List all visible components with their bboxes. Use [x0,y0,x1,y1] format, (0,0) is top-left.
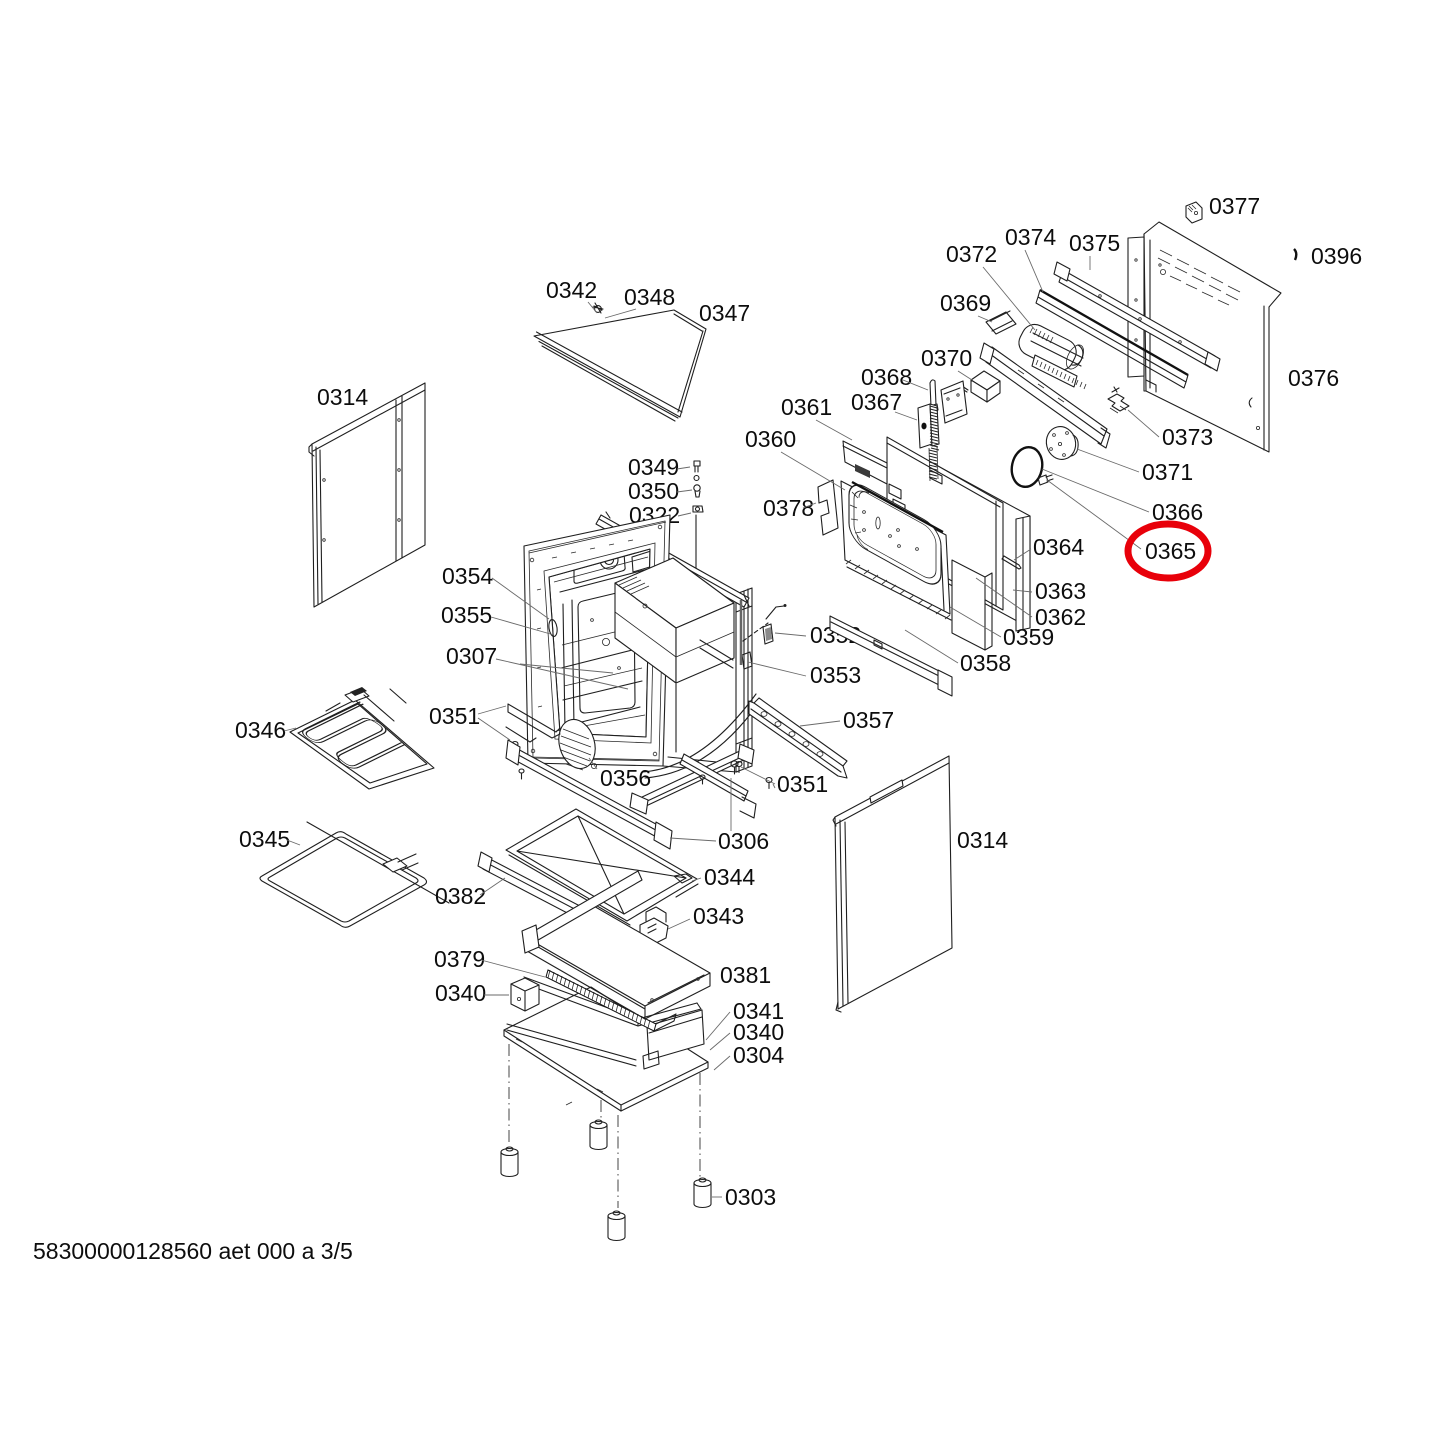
svg-text:0374: 0374 [1005,224,1056,250]
svg-text:0376: 0376 [1288,365,1339,391]
svg-text:0356: 0356 [600,765,651,791]
svg-text:0340: 0340 [435,980,486,1006]
svg-text:0304: 0304 [733,1042,784,1068]
svg-text:0348: 0348 [624,284,675,310]
svg-text:0349: 0349 [628,454,679,480]
svg-text:0351: 0351 [777,771,828,797]
svg-text:0382: 0382 [435,883,486,909]
svg-text:0314: 0314 [317,384,368,410]
svg-text:0362: 0362 [1035,604,1086,630]
svg-text:0314: 0314 [957,827,1008,853]
svg-text:0363: 0363 [1035,578,1086,604]
svg-text:0344: 0344 [704,864,755,890]
svg-text:0355: 0355 [441,602,492,628]
svg-text:58300000128560 aet 000 a 3/5: 58300000128560 aet 000 a 3/5 [33,1238,353,1264]
svg-text:0303: 0303 [725,1184,776,1210]
svg-text:0347: 0347 [699,300,750,326]
svg-text:0381: 0381 [720,962,771,988]
svg-text:0364: 0364 [1033,534,1084,560]
svg-text:0358: 0358 [960,650,1011,676]
svg-text:0396: 0396 [1311,243,1362,269]
svg-text:0373: 0373 [1162,424,1213,450]
svg-text:0378: 0378 [763,495,814,521]
svg-text:0357: 0357 [843,707,894,733]
svg-text:0371: 0371 [1142,459,1193,485]
svg-text:0370: 0370 [921,345,972,371]
svg-text:0368: 0368 [861,364,912,390]
svg-text:0350: 0350 [628,478,679,504]
svg-text:0346: 0346 [235,717,286,743]
svg-text:0361: 0361 [781,394,832,420]
svg-text:0353: 0353 [810,662,861,688]
svg-text:0379: 0379 [434,946,485,972]
svg-text:0342: 0342 [546,277,597,303]
svg-text:0306: 0306 [718,828,769,854]
svg-text:0343: 0343 [693,903,744,929]
svg-text:0369: 0369 [940,290,991,316]
svg-text:0351: 0351 [429,703,480,729]
svg-text:0354: 0354 [442,563,493,589]
svg-text:0375: 0375 [1069,230,1120,256]
svg-text:0345: 0345 [239,826,290,852]
svg-text:0360: 0360 [745,426,796,452]
svg-text:0367: 0367 [851,389,902,415]
svg-text:0365: 0365 [1145,538,1196,564]
svg-text:0307: 0307 [446,643,497,669]
svg-text:0377: 0377 [1209,193,1260,219]
svg-text:0372: 0372 [946,241,997,267]
